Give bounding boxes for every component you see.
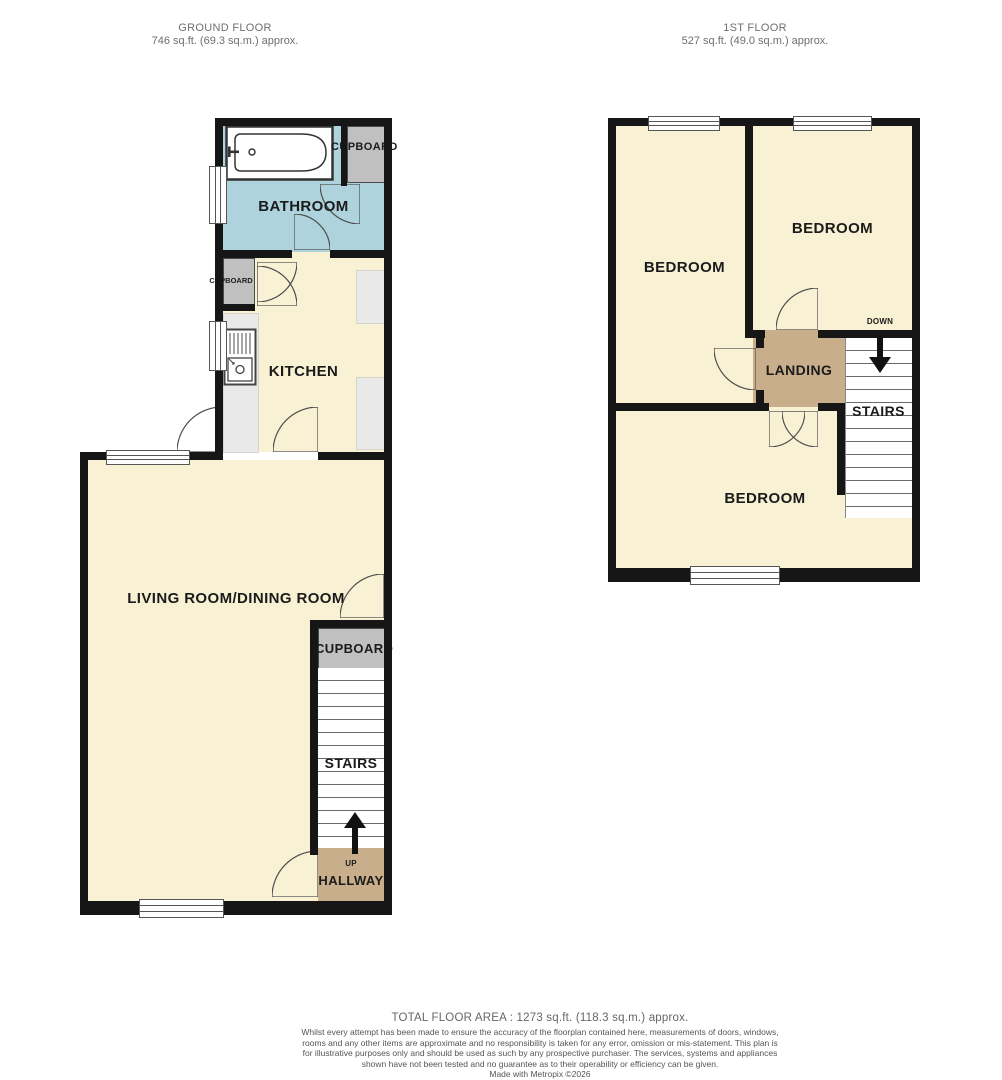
bedroom-bottom-window (690, 566, 780, 585)
up-label: UP (318, 859, 384, 869)
bathroom-label: BATHROOM (223, 198, 384, 215)
wall (80, 901, 392, 915)
ground-floor-header: GROUND FLOOR 746 sq.ft. (69.3 sq.m.) app… (75, 22, 375, 48)
first-stairs-label: STAIRS (845, 404, 912, 419)
wall (608, 118, 616, 582)
ground-stairs-label: STAIRS (318, 756, 384, 771)
total-floor-area: TOTAL FLOOR AREA : 1273 sq.ft. (118.3 sq… (290, 1012, 790, 1024)
bedroom-right-window (793, 116, 872, 131)
wall (756, 330, 764, 348)
ground-floor-area: 746 sq.ft. (69.3 sq.m.) approx. (75, 35, 375, 48)
wall (215, 118, 392, 126)
wall (215, 250, 292, 258)
kitchen-cupboard-door-swing-lower (257, 266, 297, 306)
landing-label: LANDING (753, 363, 845, 378)
kitchen-window (209, 321, 227, 371)
wall (341, 126, 347, 186)
bedroom-left-window (648, 116, 720, 131)
kitchen-living-door-swing-right (273, 407, 318, 452)
kitchen-counter-right-upper (356, 270, 385, 324)
wall (80, 452, 88, 915)
wall (837, 403, 845, 495)
bedroom-right-label: BEDROOM (753, 220, 912, 237)
wall (330, 250, 392, 258)
wall (818, 330, 920, 338)
kitchen-counter-right-lower (356, 377, 385, 450)
bedroom-bottom-label: BEDROOM (650, 490, 880, 507)
hallway-door-swing (272, 851, 318, 897)
bedroom-left-label: BEDROOM (616, 259, 753, 276)
wall (215, 304, 255, 311)
bedroom-bottom-door-swing-right (782, 411, 818, 447)
stairs-up-arrow-icon (344, 812, 366, 856)
down-label: DOWN (855, 317, 905, 327)
bathroom-window (209, 166, 227, 224)
wall (608, 403, 769, 411)
wall (912, 118, 920, 582)
floorplan-page: GROUND FLOOR 746 sq.ft. (69.3 sq.m.) app… (0, 0, 1002, 1080)
ground-floor-title: GROUND FLOOR (75, 22, 375, 35)
stairs-cupboard-label: CUPBOARD (315, 641, 387, 656)
kitchen-label: KITCHEN (223, 363, 384, 380)
disclaimer-text: Whilst every attempt has been made to en… (300, 1027, 780, 1069)
living-room-label: LIVING ROOM/DINING ROOM (88, 590, 384, 607)
wall (318, 452, 392, 460)
wall (310, 620, 318, 855)
hallway-label: HALLWAY (314, 873, 388, 888)
bedroom-right-door-swing (776, 288, 818, 330)
living-room-window-top (106, 450, 190, 465)
first-floor-area: 527 sq.ft. (49.0 sq.m.) approx. (605, 35, 905, 48)
wall (310, 620, 392, 628)
bathroom-cupboard (347, 126, 385, 183)
bedroom-left-door-swing (714, 348, 756, 390)
wall (384, 118, 392, 915)
living-room-window-bottom (139, 899, 224, 918)
first-floor-header: 1ST FLOOR 527 sq.ft. (49.0 sq.m.) approx… (605, 22, 905, 48)
first-floor-title: 1ST FLOOR (605, 22, 905, 35)
wall (745, 126, 753, 338)
metropix-credit: Made with Metropix ©2026 (290, 1069, 790, 1080)
bathtub-icon (225, 125, 337, 183)
footer: TOTAL FLOOR AREA : 1273 sq.ft. (118.3 sq… (290, 1012, 790, 1080)
stairs-down-arrow-icon (869, 334, 891, 374)
